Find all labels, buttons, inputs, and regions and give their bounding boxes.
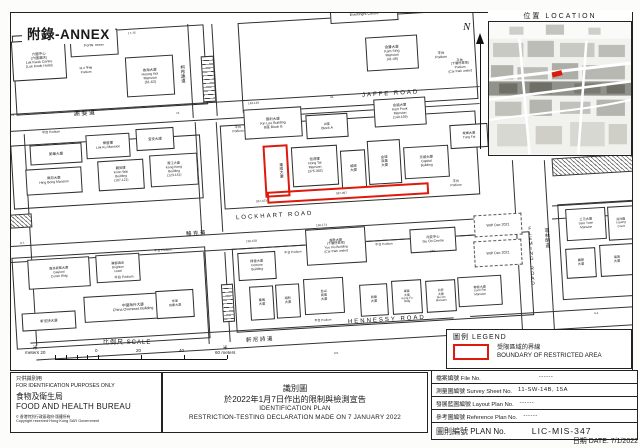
scale-tick-0: 0 <box>95 348 98 353</box>
map-num: 4.4. <box>594 312 599 316</box>
map-bldg: 台山商業大廈 <box>303 277 345 315</box>
scale-title: 比例尺 SCALE <box>103 337 151 346</box>
copyright-en: Copyright reserved‧Hong Kong SAR Governm… <box>16 419 99 423</box>
north-label: N <box>463 21 470 33</box>
map-lbl: 平台 Podium <box>308 315 338 326</box>
annex-label: 附錄-ANNEX <box>22 22 115 44</box>
bldg-hing-bong-mansion: 興邦大廈Hing Bong Mansion <box>25 166 82 195</box>
map-num: 44. <box>330 96 334 100</box>
map-lbl: 平台 Podium <box>278 247 309 259</box>
map-hatch <box>552 154 633 177</box>
map-bldg: 廣德大廈 <box>565 247 597 279</box>
bldg-koon-wai-building: 覲美樓Koon WaiBuilding(107-121) <box>97 159 145 192</box>
map-bldg: 樂居樓Lok Ku Mansion <box>85 133 130 160</box>
map-bldg: 金城商業大廈 <box>367 139 403 185</box>
legend-restricted-swatch <box>453 344 489 360</box>
legend-line-en: BOUNDARY OF RESTRICTED AREA <box>497 352 602 360</box>
declaration-title-zh: 於2022年1月7日作出的限制與檢測宣告 <box>224 394 366 405</box>
bldg-hong-tat-mansion: 恒達樓Hong TatMansion(375-383) <box>291 145 339 188</box>
map-lbl: 平台 Podium <box>146 245 181 257</box>
map-bldg: 海灣大廈 <box>599 243 633 277</box>
legend-box: 圖例 LEGEND 受限區域的界線 BOUNDARY OF RESTRICTED… <box>446 329 632 369</box>
map-num: 367-373 <box>256 200 267 204</box>
plan-number-value: LIC-MIS-347 <box>532 426 592 436</box>
legend-title: 圖例 LEGEND <box>453 332 625 342</box>
scale-right-label: 60 meters <box>215 350 235 355</box>
map-dashed: WIP Dec 2021 <box>473 239 522 268</box>
date-label: 日期 DATE: 7/1/2022 <box>450 436 638 446</box>
location-inset: 位置 LOCATION <box>488 10 632 156</box>
location-map-image <box>488 21 632 156</box>
copyright-icon: © <box>16 415 19 419</box>
title-block: 識別圖 於2022年1月7日作出的限制與檢測宣告 IDENTIFICATION … <box>162 372 428 433</box>
scale-bar: 比例尺 SCALE 米 meters 20 0 20 40 米 60 meter… <box>15 335 251 367</box>
bldg-kam-fook-mansion: 金福大廈Kam FookMansion(149-159) <box>373 96 427 127</box>
identification-plan-page: 六國中心(六國酒店)Luk Kwok Centre(Luk Kwok Hotel… <box>0 0 640 448</box>
bldg-kam-sing-mansion: 金聲大廈Kam SingMansion(41-49) <box>365 34 419 71</box>
location-map-graphic <box>489 22 631 155</box>
map-bldg: 港江大廈Kong KongBuilding(123-141) <box>149 153 199 188</box>
map-num: 150-158 <box>246 240 257 244</box>
map-bldg: A座Block A <box>305 113 348 139</box>
info-table-rows: 檔案編號 File No.------測量圖編號 Survey Sheet No… <box>432 371 637 423</box>
map-bldg: 萬鳴大廈 <box>249 285 275 320</box>
map-num: 188 <box>430 250 435 254</box>
map-lbl: 平台Podium <box>439 173 472 195</box>
map-ladder <box>201 56 217 103</box>
map-bldg: 世運商業大廈 <box>155 289 195 319</box>
map-bldg: 兆安大廈Siu OnMansion <box>425 279 457 313</box>
info-table-row: 發展藍圖編號 Layout Plan No.------ <box>432 397 637 410</box>
map-num: 3.3. <box>10 114 15 118</box>
bldg-heung-hoi-mansion: 香海大廈Heung HoiMansion(61-63) <box>125 55 175 98</box>
map-ladder <box>221 284 235 323</box>
declaration-title-en: RESTRICTION-TESTING DECLARATION MADE ON … <box>189 414 401 423</box>
scale-left-label: meters 20 <box>25 350 45 355</box>
bureau-name-zh: 食物及衛生局 <box>16 392 156 402</box>
map-bldg: 凌洋閣LoyangCourt <box>607 205 633 240</box>
info-table: 檔案編號 File No.------測量圖編號 Survey Sheet No… <box>431 370 638 440</box>
road-jaffe-zh: 謝斐道 <box>74 110 97 118</box>
map-bldg: 眞榮大廈 <box>359 283 389 317</box>
map-bldg: 康富大廈Kong FuBldg <box>391 279 423 315</box>
scale-tick-20: 20 <box>136 348 141 353</box>
copyright-zh: 香港特別行政區政府‧版權所有 <box>20 415 71 419</box>
id-purpose-en: FOR IDENTIFICATION PURPOSES ONLY <box>16 383 156 390</box>
legend-line-zh: 受限區域的界線 <box>497 344 602 352</box>
map-bldg: 宜安大廈 <box>135 127 174 151</box>
map-num: 17-75 <box>128 32 136 36</box>
map-bldg: 順利大廈 <box>275 283 301 318</box>
map-num: 74. <box>176 112 180 116</box>
info-table-row: 測量圖編號 Survey Sheet No.11-SW-14B, 15A <box>432 384 637 397</box>
map-lbl: 平台 Podium <box>106 271 143 285</box>
map-bldg: 得發大廈FortuneBuilding <box>237 251 277 281</box>
bldg-luk-kwok-centre: 六國中心(六國酒店)Luk Kwok Centre(Luk Kwok Hotel… <box>11 38 67 81</box>
map-num: 3.7. <box>20 242 25 246</box>
road-lockhart: LOCKHART ROAD <box>236 211 314 222</box>
map-lbl: M.4 平台Podium <box>64 61 109 82</box>
map-lbl: 平台 Podium <box>370 239 399 251</box>
bldg-sam-yuen-mansion: 三元大廈Sam YuenMansion <box>565 207 607 241</box>
map-num: 3.6. <box>334 352 339 356</box>
road-fleming-zh: 菲林明道 <box>539 214 551 262</box>
scale-tick-40: 40 <box>179 348 184 353</box>
plan-number-label: 圖則編號 PLAN No. <box>436 426 506 437</box>
map-dashed: WIP Dec 2021 <box>473 213 522 238</box>
map-bldg: 美華大廈 <box>29 142 82 165</box>
bureau-box: 只供識別用 FOR IDENTIFICATION PURPOSES ONLY 食… <box>10 372 162 433</box>
map-bldg: 軒尼詩大廈 <box>22 310 77 331</box>
map-lbl: 平台Podium <box>225 115 251 144</box>
location-title: 位置 LOCATION <box>488 11 632 21</box>
bldg-luen-fat-mansion: 聯發大廈Luen FatMansion <box>457 275 503 308</box>
info-table-row: 參考圖編號 Reference Plan No.------ <box>432 410 637 423</box>
map-bldg: 城威大廈 <box>340 149 367 188</box>
plan-title-zh: 識別圖 <box>283 383 308 394</box>
map-lbl: 平台 Podium <box>34 127 69 139</box>
road-lockhart-zh: 駱克道 <box>186 230 207 238</box>
bldg-yue-xiu-building: 越秀大廈(下層停車場)Yue Xiu Building(Car Park und… <box>305 226 367 265</box>
bldg-kin-lee-building: 建利大廈Kin Lee BuildingB座 Block B <box>243 106 303 139</box>
map-hatch <box>10 213 32 228</box>
bldg-gaylord-commercial: 嘉洛商業大廈GaylordComm Bldg <box>27 256 91 290</box>
info-table-row: 檔案編號 File No.------ <box>432 371 637 384</box>
map-num: 143-149 <box>248 102 259 106</box>
bureau-name-en: FOOD AND HEALTH BUREAU <box>16 402 156 412</box>
map-num: 160-174 <box>316 224 327 228</box>
plan-title-en: IDENTIFICATION PLAN <box>259 405 331 414</box>
